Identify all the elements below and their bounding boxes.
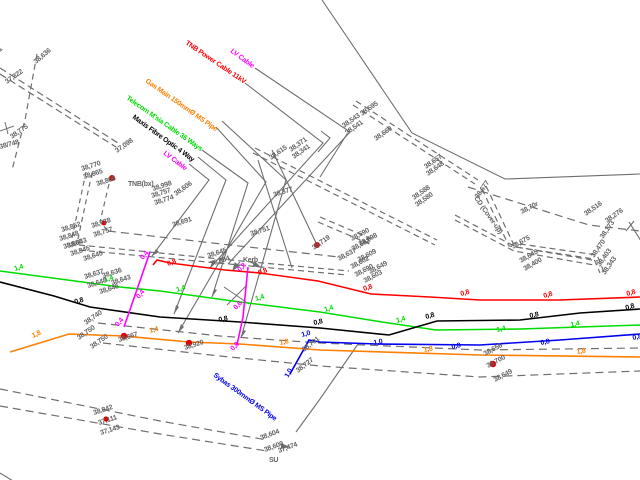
svg-text:SU: SU (269, 457, 278, 464)
svg-text:Kerb: Kerb (243, 257, 258, 264)
svg-text:0,8: 0,8 (632, 333, 640, 342)
svg-text:TNB(bx): TNB(bx) (128, 181, 153, 188)
